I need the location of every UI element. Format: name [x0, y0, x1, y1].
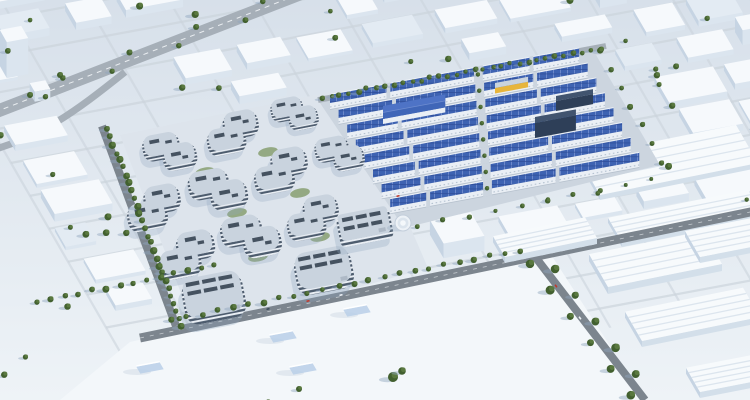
tree-highlight [126, 173, 130, 177]
tree-highlight [479, 89, 482, 92]
tree-highlight [130, 187, 134, 191]
tree-highlight [438, 73, 441, 76]
tree-highlight [473, 257, 477, 261]
tree-highlight [574, 292, 578, 296]
tree-highlight [52, 172, 55, 175]
tree-highlight [334, 35, 338, 39]
tree-highlight [489, 253, 492, 256]
tree-highlight [402, 80, 405, 83]
tree-highlight [322, 287, 325, 290]
tree-highlight [475, 67, 478, 70]
tree-highlight [132, 281, 135, 284]
tree-highlight [504, 251, 507, 254]
tree-highlight [29, 92, 33, 96]
tree-highlight [338, 92, 341, 95]
tree-highlight [365, 86, 368, 89]
warehouse-gap [404, 129, 408, 146]
tree-highlight [519, 249, 522, 252]
tree-highlight [247, 301, 251, 305]
tree-highlight [549, 286, 555, 292]
tree-highlight [656, 72, 660, 76]
tree-highlight [105, 286, 109, 290]
context-block-front [7, 38, 28, 78]
warehouse-gap [556, 167, 560, 184]
tree-highlight [298, 386, 302, 390]
warehouse-gap [537, 88, 541, 105]
tree-highlight [447, 56, 451, 60]
tree-highlight [263, 300, 267, 304]
tree-highlight [447, 74, 450, 77]
tree-highlight [139, 3, 143, 7]
tree-highlight [194, 11, 198, 15]
tree-highlight [480, 105, 483, 108]
tree-highlight [459, 260, 463, 264]
tree-highlight [554, 265, 559, 270]
tree-highlight [415, 268, 419, 272]
tree-highlight [278, 295, 281, 298]
tree-highlight [107, 213, 111, 217]
tree-highlight [465, 70, 468, 73]
tree-highlight [137, 203, 141, 207]
tree-highlight [354, 281, 358, 285]
tree-highlight [635, 370, 640, 375]
tree-highlight [150, 239, 154, 243]
tree-highlight [590, 339, 594, 343]
tree-highlight [77, 292, 80, 295]
tree-highlight [399, 270, 403, 274]
tree-highlight [160, 274, 164, 278]
tree-highlight [128, 179, 132, 183]
tree-highlight [582, 51, 585, 54]
tree-highlight [675, 63, 679, 67]
tree-highlight [456, 73, 459, 76]
tree-highlight [129, 50, 133, 54]
tree-highlight [173, 301, 176, 304]
tree-highlight [671, 103, 675, 107]
warehouse-gap [421, 175, 425, 192]
tree-highlight [442, 217, 445, 220]
tree-highlight [547, 198, 550, 201]
tree-highlight [170, 317, 174, 321]
tree-highlight [629, 104, 633, 108]
tree-highlight [610, 67, 613, 70]
tree-highlight [3, 372, 7, 376]
tree-highlight [138, 210, 142, 214]
tree-highlight [181, 85, 185, 89]
warehouse-gap [415, 160, 419, 177]
tree-highlight [111, 69, 114, 72]
tree-highlight [661, 160, 664, 163]
tree-highlight [563, 54, 566, 57]
architectural-rendering [0, 0, 750, 400]
tree-highlight [147, 234, 150, 237]
tree-highlight [106, 126, 110, 130]
tree-highlight [153, 247, 158, 252]
tree-highlight [202, 312, 206, 316]
tree-highlight [486, 186, 489, 189]
tree-highlight [594, 318, 599, 323]
tree-highlight [306, 291, 309, 294]
warehouse-gap [552, 151, 556, 168]
tree-highlight [509, 61, 512, 64]
tree-highlight [706, 16, 709, 19]
tree-highlight [600, 188, 603, 191]
tree-highlight [428, 267, 431, 270]
tree-highlight [597, 191, 600, 194]
tree-highlight [573, 50, 577, 54]
tree-highlight [36, 300, 39, 303]
tree-highlight [158, 263, 162, 267]
tree-highlight [29, 18, 32, 21]
tree-highlight [481, 121, 484, 124]
tree-highlight [218, 85, 222, 89]
tree-highlight [168, 285, 172, 289]
tree-highlight [50, 296, 54, 300]
tree-highlight [180, 323, 184, 327]
tree-highlight [658, 82, 661, 85]
tree-highlight [70, 225, 73, 228]
tree-highlight [625, 183, 627, 185]
tree-highlight [67, 303, 71, 307]
tree-highlight [651, 141, 654, 144]
tree-highlight [25, 354, 28, 357]
tree-highlight [590, 48, 593, 51]
tree-highlight [122, 164, 125, 167]
rendering-scene [0, 0, 750, 400]
tree-highlight [111, 142, 116, 147]
tree-highlight [105, 229, 109, 233]
tree-highlight [161, 269, 165, 273]
tree-highlight [144, 225, 148, 229]
tree-highlight [746, 198, 749, 201]
tree-highlight [417, 224, 420, 227]
tree-highlight [109, 133, 113, 137]
tree-highlight [339, 283, 343, 287]
tree-highlight [173, 270, 176, 273]
tree-highlight [7, 48, 11, 52]
warehouse-gap [533, 72, 537, 89]
tree-highlight [367, 277, 371, 281]
tree-highlight [483, 137, 486, 140]
tree-highlight [630, 391, 635, 396]
tree-highlight [655, 67, 658, 70]
tree-highlight [529, 260, 534, 265]
tree-highlight [500, 64, 503, 67]
tree-highlight [195, 24, 199, 28]
tree-highlight [120, 282, 124, 286]
tree-highlight [614, 344, 619, 349]
tree-highlight [125, 230, 129, 234]
tree-highlight [45, 94, 48, 97]
tree-highlight [410, 59, 413, 62]
tree-highlight [330, 9, 333, 12]
tree-highlight [495, 209, 498, 212]
tree-highlight [322, 96, 325, 99]
tree-highlight [170, 294, 173, 297]
tree-highlight [642, 122, 645, 125]
tree-highlight [85, 231, 89, 235]
tree-highlight [485, 170, 488, 173]
tree-highlight [185, 314, 188, 317]
round-pavilion-core [400, 220, 406, 226]
warehouse-gap [409, 144, 413, 161]
tree-highlight [384, 274, 387, 277]
tree-highlight [116, 152, 119, 155]
warehouse-gap [548, 135, 552, 152]
tree-highlight [59, 72, 63, 76]
tree-highlight [245, 17, 249, 21]
tree-highlight [91, 287, 95, 291]
tree-highlight [536, 58, 539, 61]
tree-highlight [522, 204, 525, 207]
tree-highlight [413, 79, 416, 82]
tree-highlight [569, 313, 573, 317]
tree-highlight [625, 39, 628, 42]
tree-highlight [651, 177, 653, 179]
tree-highlight [217, 307, 221, 311]
tree-highlight [554, 53, 558, 57]
tree-highlight [187, 267, 191, 271]
warehouse-gap [426, 191, 430, 208]
tree-highlight [178, 43, 181, 46]
tree-highlight [668, 163, 672, 167]
tree-highlight [469, 215, 472, 218]
tree-highlight [621, 86, 624, 89]
tree-highlight [599, 48, 603, 52]
tree-highlight [401, 367, 406, 372]
tree-highlight [233, 304, 237, 308]
tree-highlight [165, 278, 169, 282]
tree-highlight [477, 72, 480, 75]
tree-highlight [610, 365, 615, 370]
tree-highlight [65, 293, 68, 296]
tree-highlight [141, 217, 145, 221]
tree-highlight [572, 192, 575, 195]
tree-highlight [293, 294, 296, 297]
tree-highlight [134, 196, 137, 199]
tree-highlight [484, 154, 487, 157]
tree-highlight [201, 266, 204, 269]
tree-highlight [156, 256, 160, 260]
tree-highlight [213, 263, 216, 266]
tree-highlight [482, 67, 485, 70]
tree-highlight [175, 309, 178, 312]
tree-highlight [146, 278, 149, 281]
tree-highlight [119, 156, 123, 160]
tree-highlight [443, 262, 446, 265]
tree-highlight [348, 92, 351, 95]
